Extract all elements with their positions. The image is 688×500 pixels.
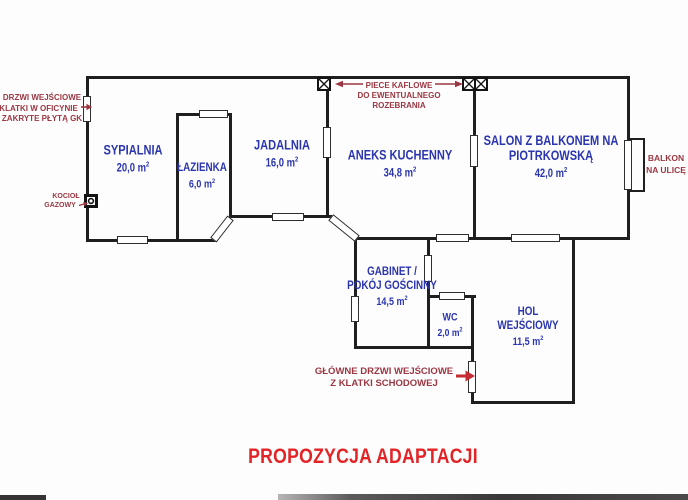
arrow-right-icon <box>79 201 88 211</box>
room-label-jadalnia: JADALNIA 16,0 m2 <box>254 138 310 171</box>
room-name: SALON Z BALKONEM NA <box>484 133 619 148</box>
room-label-lazienka: ŁAZIENKA 6,0 m2 <box>177 161 227 191</box>
room-name: ŁAZIENKA <box>177 161 227 175</box>
annotation-line: ZAKRYTE PŁYTĄ GK <box>1 114 83 124</box>
room-area: 11,5 m2 <box>497 332 558 349</box>
room-name: SYPIALNIA <box>103 143 162 158</box>
scan-artifact <box>0 495 46 500</box>
room-label-gabinet: GABINET / POKÓJ GOŚCINNY 14,5 m2 <box>347 265 437 309</box>
door-salon-hol <box>511 234 560 242</box>
wall-hol-bottom <box>471 401 575 404</box>
room-area: 2,0 m2 <box>438 324 463 339</box>
window-sypialnia <box>117 236 148 244</box>
annotation-line: NA ULICĘ <box>644 165 688 177</box>
page-title: PROPOZYCJA ADAPTACJI <box>248 445 478 469</box>
wall-sypialnia-bottom <box>86 239 217 242</box>
door-aneks-salon <box>470 135 478 167</box>
annotation-balcony: BALKON NA ULICĘ <box>644 153 688 176</box>
wall-top <box>86 76 630 79</box>
door-gabinet-corner <box>328 214 359 242</box>
door-lazienka-corner <box>210 216 234 243</box>
annotation-line: PIECE KAFLOWE <box>334 80 464 91</box>
annotation-line: BALKON <box>644 153 688 165</box>
tiled-stove-icon <box>317 77 331 91</box>
annotation-line: ROZEBRANIA <box>334 101 464 111</box>
annotation-boiler: KOCIOŁ GAZOWY <box>50 193 82 211</box>
room-area: 34,8 m2 <box>348 163 453 181</box>
floor-plan: SYPIALNIA 20,0 m2 ŁAZIENKA 6,0 m2 JADALN… <box>0 0 688 500</box>
room-name: WC <box>438 312 463 325</box>
room-name: ANEKS KUCHENNY <box>348 148 453 163</box>
room-area: 16,0 m2 <box>254 153 310 171</box>
room-area: 14,5 m2 <box>347 292 437 309</box>
arrow-right-icon <box>435 80 463 91</box>
annotation-line: Z KLATKI W OFICYNIE <box>1 103 83 114</box>
door-balcony <box>624 140 632 190</box>
annotation-line: GŁÓWNE DRZWI WEJŚCIOWE <box>315 366 453 378</box>
arrow-right-icon <box>81 103 92 114</box>
room-label-salon: SALON Z BALKONEM NA PIOTRKOWSKĄ 42,0 m2 <box>484 133 619 181</box>
room-name: PIOTRKOWSKĄ <box>484 148 619 163</box>
wall-gabinet-bottom <box>354 346 474 349</box>
annotation-line: KOCIOŁ <box>50 193 82 201</box>
annotation-line: Z KLATKI SCHODOWEJ <box>315 378 453 390</box>
room-area: 42,0 m2 <box>484 163 619 181</box>
room-name: WEJŚCIOWY <box>497 319 558 333</box>
room-name: HOL <box>497 305 558 319</box>
annotation-text: GŁÓWNE DRZWI WEJŚCIOWE Z KLATKI SCHODOWE… <box>315 366 453 389</box>
door-lazienka-top <box>199 110 228 118</box>
tiled-stove-double-icon <box>462 77 488 91</box>
room-label-hol: HOL WEJŚCIOWY 11,5 m2 <box>497 305 558 349</box>
main-entrance-arrow-icon <box>456 370 475 386</box>
door-jadalnia-aneks <box>323 127 331 158</box>
room-label-aneks-kuchenny: ANEKS KUCHENNY 34,8 m2 <box>348 148 453 181</box>
wall-south <box>354 237 630 240</box>
room-label-sypialnia: SYPIALNIA 20,0 m2 <box>103 143 162 176</box>
annotation-stoves: PIECE KAFLOWE DO EWENTUALNEGO ROZEBRANIA <box>334 80 464 111</box>
room-label-wc: WC 2,0 m2 <box>438 312 463 339</box>
wall-lazienka-right <box>229 113 232 218</box>
room-area: 6,0 m2 <box>177 174 227 191</box>
door-aneks-hol <box>436 234 469 242</box>
room-name: POKÓJ GOŚCINNY <box>347 279 437 293</box>
door-wc <box>439 292 465 300</box>
annotation-block: GŁÓWNE DRZWI WEJŚCIOWE Z KLATKI SCHODOWE… <box>318 366 472 389</box>
annotation-main-door: GŁÓWNE DRZWI WEJŚCIOWE Z KLATKI SCHODOWE… <box>318 366 472 389</box>
annotation-line: DO EWENTUALNEGO <box>334 91 464 101</box>
wall-hol-right <box>572 239 575 404</box>
room-name: GABINET / <box>347 265 437 279</box>
room-area: 20,0 m2 <box>103 158 162 176</box>
arrow-left-icon <box>335 80 363 91</box>
annotation-line: GAZOWY <box>50 201 82 211</box>
room-name: JADALNIA <box>254 138 310 153</box>
annotation-covered-door: DRZWI WEJŚCIOWE Z KLATKI W OFICYNIE ZAKR… <box>1 93 83 124</box>
window-jadalnia <box>272 213 304 221</box>
scan-artifact <box>278 494 688 500</box>
annotation-line: DRZWI WEJŚCIOWE <box>1 93 83 103</box>
